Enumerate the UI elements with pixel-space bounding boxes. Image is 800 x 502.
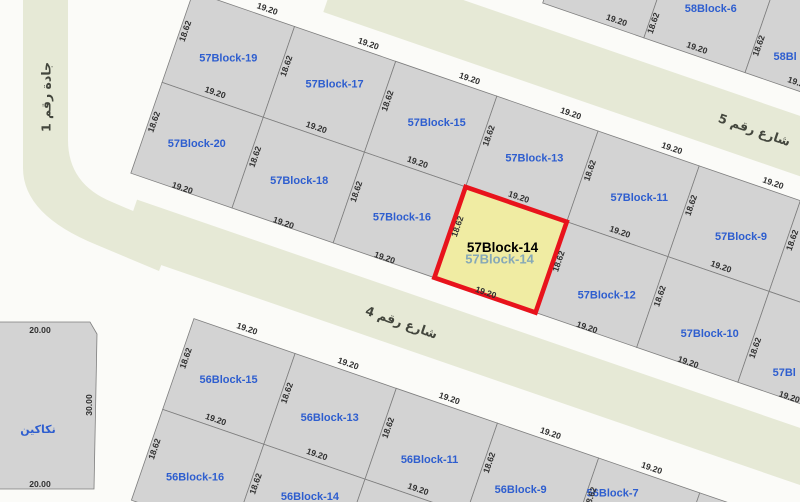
parcel-label: 56Block-14 [281, 491, 340, 502]
parcel-label: 57Block-15 [408, 117, 466, 129]
street-avenue-1-label: جادة رقم 1 [38, 62, 53, 132]
map-canvas[interactable]: 57Block-1957Block-1757Block-1557Block-13… [0, 0, 800, 502]
parcel-label: 57Block-13 [505, 153, 563, 165]
parcel-label: 56Block-9 [495, 484, 547, 496]
parcel-label: 56Block-16 [166, 471, 224, 483]
parcel-label: 57Block-12 [578, 290, 636, 302]
parcel-label: 57Block-11 [611, 192, 668, 204]
parcel-label: 58Block-6 [685, 3, 737, 15]
parcel-shops[interactable] [0, 322, 97, 489]
parcel-label: 57Block-10 [681, 328, 739, 340]
parcel-label: نكاكين [20, 424, 55, 436]
parcel-label: 57Block-19 [199, 52, 257, 64]
parcel-label: 57Block-20 [168, 138, 226, 150]
parcel-label: 57Block-9 [715, 231, 767, 243]
parcel-label: 57Block-16 [373, 212, 431, 224]
dimension-label: 30.00 [84, 394, 94, 416]
parcel-label: 57Bl [773, 367, 796, 379]
parcel-label: 57Block-18 [270, 175, 328, 187]
parcel-label: 56Block-11 [401, 454, 458, 466]
dimension-label: 20.00 [29, 325, 51, 335]
parcel-label: 58Bl [773, 51, 796, 63]
parcel-label: 56Block-15 [200, 374, 258, 386]
parcel-label: 57Block-17 [306, 78, 364, 90]
dimension-label: 20.00 [29, 479, 51, 489]
parcel-label: 56Block-13 [301, 412, 359, 424]
selected-parcel-label: 57Block-14 [467, 240, 539, 255]
